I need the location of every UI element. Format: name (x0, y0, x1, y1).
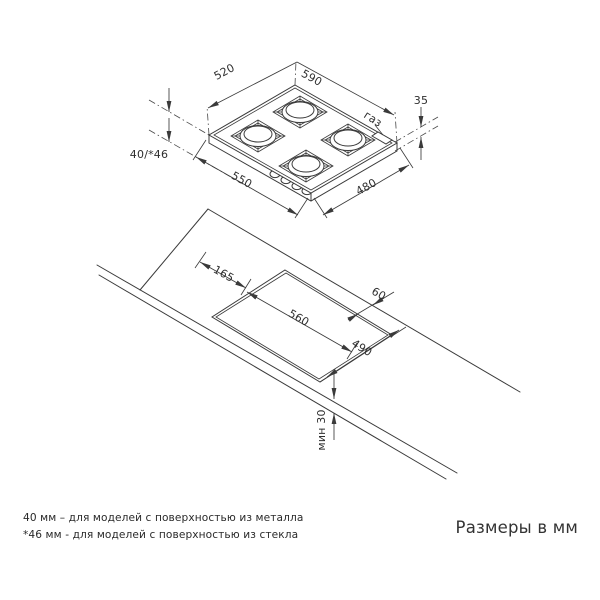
countertop-cutout-view: 165 560 60 490 мин 30 (97, 209, 520, 479)
footnote-glass: *46 мм - для моделей с поверхностью из с… (23, 529, 298, 541)
ext-line-top (295, 61, 296, 85)
counter-back-edge (208, 209, 520, 392)
ext-550-b (295, 198, 308, 218)
technical-drawing: 520 590 35 газ 40/*46 550 480 (0, 0, 600, 600)
dim-label-35: 35 (414, 94, 428, 107)
ext-550-a (193, 140, 206, 160)
ext-480-b (400, 148, 413, 168)
dim-label-560: 560 (286, 307, 311, 329)
dim-60-arrow-a (348, 314, 358, 320)
dim-label-60: 60 (369, 285, 388, 303)
hob-isometric-view: 520 590 35 газ 40/*46 550 480 (130, 61, 438, 218)
footnote-metal: 40 мм – для моделей с поверхностью из ме… (23, 512, 303, 524)
units-caption: Размеры в мм (456, 518, 578, 537)
ext-line-left (207, 106, 209, 135)
installation-diagram: 520 590 35 газ 40/*46 550 480 (0, 0, 600, 600)
dim-label-490: 490 (349, 337, 374, 359)
ext-490-a (392, 327, 406, 336)
dim-label-min30: мин 30 (315, 409, 328, 450)
ext-480-a (314, 198, 327, 218)
counter-front-top-edge (97, 265, 457, 473)
dim-label-40-46: 40/*46 (130, 148, 168, 161)
ext-165-a (195, 252, 206, 268)
dim-label-480: 480 (354, 176, 379, 198)
counter-front-bottom-edge (99, 275, 446, 479)
hob-top-plane-line (149, 100, 209, 135)
dim-label-520: 520 (212, 61, 237, 83)
counter-left-cut-edge (140, 209, 208, 290)
dim-label-590: 590 (299, 67, 324, 89)
ext-line-right (395, 112, 397, 143)
dim-label-165: 165 (211, 263, 236, 285)
